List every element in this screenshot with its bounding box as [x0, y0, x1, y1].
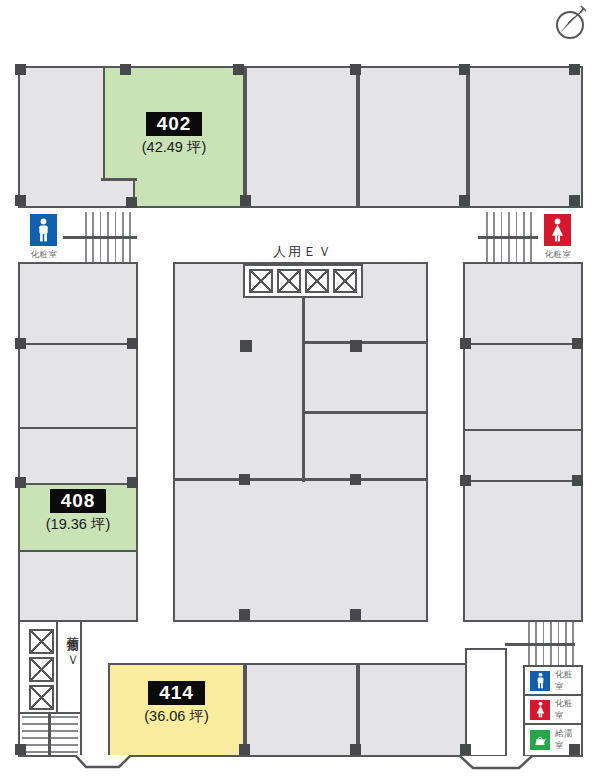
wall-segment — [101, 178, 137, 181]
entrance-notch — [74, 755, 132, 771]
wall-post — [126, 197, 137, 208]
elevator-shaft-icon — [29, 629, 54, 654]
legend-label: 化粧室 — [555, 698, 581, 722]
wall-central-h1 — [303, 341, 426, 344]
elevator-shaft-icon — [29, 657, 54, 682]
wall-post — [572, 338, 583, 349]
wall-post — [15, 64, 26, 75]
kitchenette-icon — [530, 730, 550, 750]
wall-post — [350, 609, 361, 620]
wall-central-vertical — [302, 296, 305, 482]
shaft-room — [465, 648, 507, 757]
room-402-area: (42.49 坪) — [103, 139, 245, 156]
room-top-5 — [468, 66, 583, 208]
womens-restroom-icon — [530, 700, 550, 720]
wall-post — [15, 477, 26, 488]
stair-rail — [505, 643, 575, 646]
floor-plan: 402 (42.49 坪) 化粧室 化粧室 408 (19.36 坪) — [0, 0, 602, 784]
wall-segment — [56, 622, 58, 714]
wall-post — [15, 195, 26, 206]
room-414-label: 414 (36.06 坪) — [108, 681, 245, 725]
room-left-1 — [18, 262, 138, 345]
room-left-5 — [18, 550, 138, 622]
pillar — [240, 340, 252, 352]
wall-post — [460, 475, 471, 486]
room-414-number: 414 — [148, 681, 205, 705]
wall-post — [460, 338, 471, 349]
room-top-left — [18, 66, 103, 180]
wall-post — [350, 474, 361, 485]
room-408-number: 408 — [50, 489, 107, 513]
womens-restroom-icon — [544, 214, 571, 246]
room-408-area: (19.36 坪) — [18, 516, 138, 533]
stair-rail — [48, 714, 51, 757]
room-414-area: (36.06 坪) — [108, 708, 245, 725]
room-right-2 — [463, 343, 583, 431]
wall-post — [233, 64, 244, 75]
wall-post — [350, 744, 361, 755]
entrance-notch — [459, 756, 533, 772]
room-402-number: 402 — [146, 112, 203, 136]
wall-central-h2 — [303, 411, 426, 414]
wall-post — [120, 64, 131, 75]
elevator-shaft-icon — [249, 269, 273, 293]
mens-restroom-icon — [530, 671, 550, 691]
mens-restroom-label: 化粧室 — [14, 249, 74, 261]
wall-post — [459, 195, 470, 206]
wall-post — [15, 338, 26, 349]
stair-rail — [478, 236, 538, 239]
stair-rail — [63, 236, 137, 239]
room-top-left-extension — [18, 178, 135, 208]
wall-post — [569, 64, 580, 75]
wall-post — [239, 474, 250, 485]
room-left-2 — [18, 343, 138, 429]
elevator-shaft-icon — [333, 269, 357, 293]
passenger-elevator-label: 人用ＥＶ — [233, 243, 373, 261]
wall-post — [239, 744, 250, 755]
legend-label: 化粧室 — [555, 669, 581, 693]
wall-post — [460, 744, 471, 755]
wall-central-h3 — [175, 478, 426, 481]
wall-post — [459, 64, 470, 75]
central-block — [173, 262, 428, 622]
room-bottom-2 — [245, 663, 358, 757]
room-408-label: 408 (19.36 坪) — [18, 489, 138, 533]
wall-post — [350, 64, 361, 75]
wall-post — [572, 475, 583, 486]
room-right-1 — [463, 262, 583, 345]
room-bottom-3 — [358, 663, 467, 757]
wall-post — [569, 744, 580, 755]
elevator-shaft-icon — [305, 269, 329, 293]
room-right-4 — [463, 480, 583, 622]
room-top-3 — [245, 66, 358, 208]
wall-post — [127, 338, 138, 349]
room-left-3 — [18, 427, 138, 485]
mens-restroom-icon — [30, 214, 57, 246]
north-compass-icon — [551, 4, 591, 44]
room-right-3 — [463, 429, 583, 482]
room-top-4 — [358, 66, 468, 208]
womens-restroom-label: 化粧室 — [528, 249, 588, 261]
wall-post — [239, 609, 250, 620]
wall-post — [127, 477, 138, 488]
wall-post — [15, 744, 26, 755]
legend-item-mens-restroom: 化粧室 — [523, 665, 583, 696]
wall-post — [569, 195, 580, 206]
elevator-shaft-icon — [277, 269, 301, 293]
legend-item-womens-restroom: 化粧室 — [523, 694, 583, 725]
elevator-shaft-icon — [29, 685, 54, 710]
freight-elevator-label: 荷物用ＥＶ — [59, 626, 81, 718]
room-402-label: 402 (42.49 坪) — [103, 112, 245, 156]
pillar — [350, 340, 362, 352]
wall-post — [240, 195, 251, 206]
